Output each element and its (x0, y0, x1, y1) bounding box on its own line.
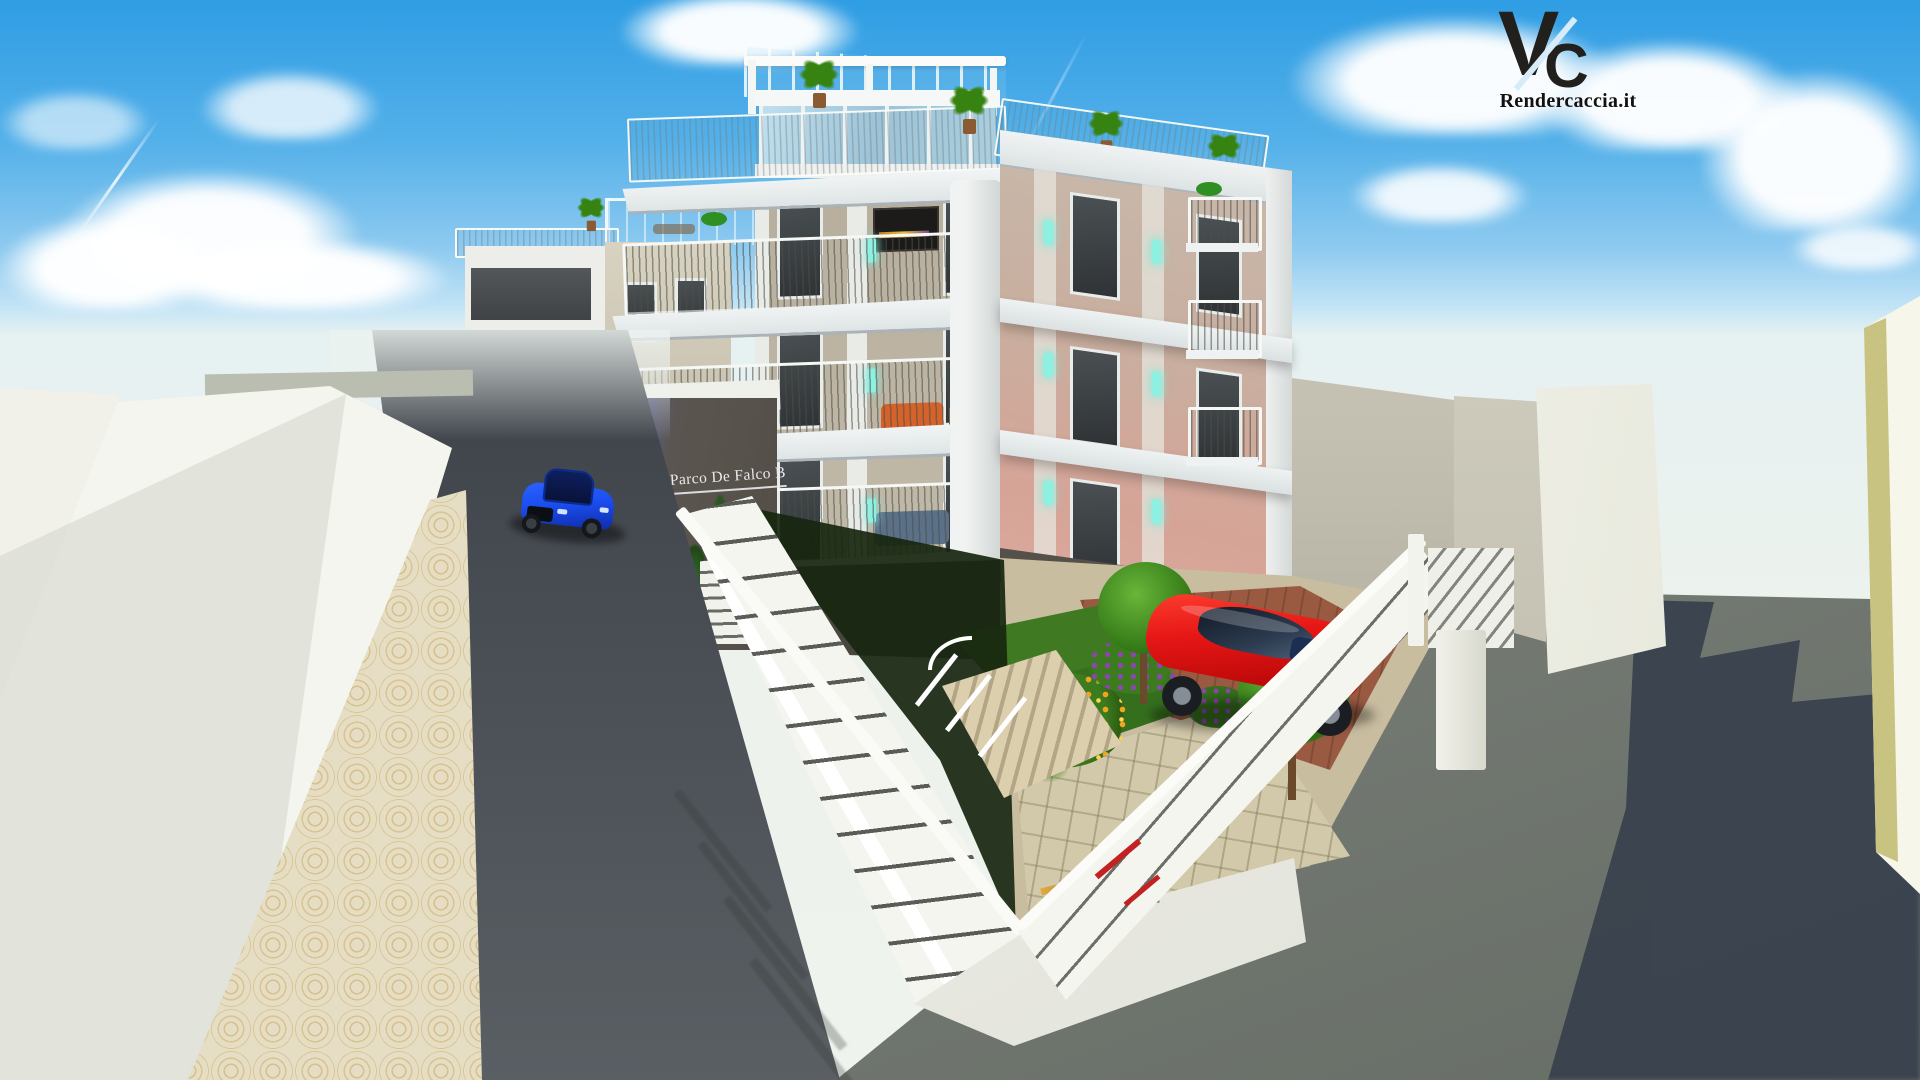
cloud (1700, 70, 1920, 230)
watermark-logo: V C Rendercaccia.it (1488, 6, 1648, 114)
headlight (599, 507, 608, 513)
side-balcony-slab (1186, 243, 1258, 252)
blue-sports-car (514, 461, 626, 549)
gate-pier (1436, 630, 1486, 770)
corner-strip (1266, 167, 1292, 623)
render-scene: Parco De Falco B (0, 0, 1920, 1080)
roof-furniture (653, 224, 695, 234)
cloud (0, 90, 150, 150)
balcony-plant (1196, 182, 1222, 196)
car-wheel (1162, 676, 1202, 716)
palm-tree (945, 88, 993, 134)
side-balcony-slab (1186, 350, 1258, 359)
palm-tree (795, 62, 843, 108)
cloud (1350, 163, 1530, 223)
cloud (1790, 222, 1920, 270)
roof-plant (701, 212, 727, 226)
headlight (557, 509, 567, 515)
bg-balcony (471, 268, 591, 320)
watermark-website: Rendercaccia.it (1488, 90, 1648, 113)
gate-post (1408, 534, 1424, 646)
side-balcony-slab (1186, 457, 1258, 466)
palm-tree (574, 199, 608, 231)
cloud (150, 238, 450, 310)
pergola-beam (744, 56, 1006, 66)
car-cabin (542, 467, 595, 506)
cloud (200, 70, 380, 140)
